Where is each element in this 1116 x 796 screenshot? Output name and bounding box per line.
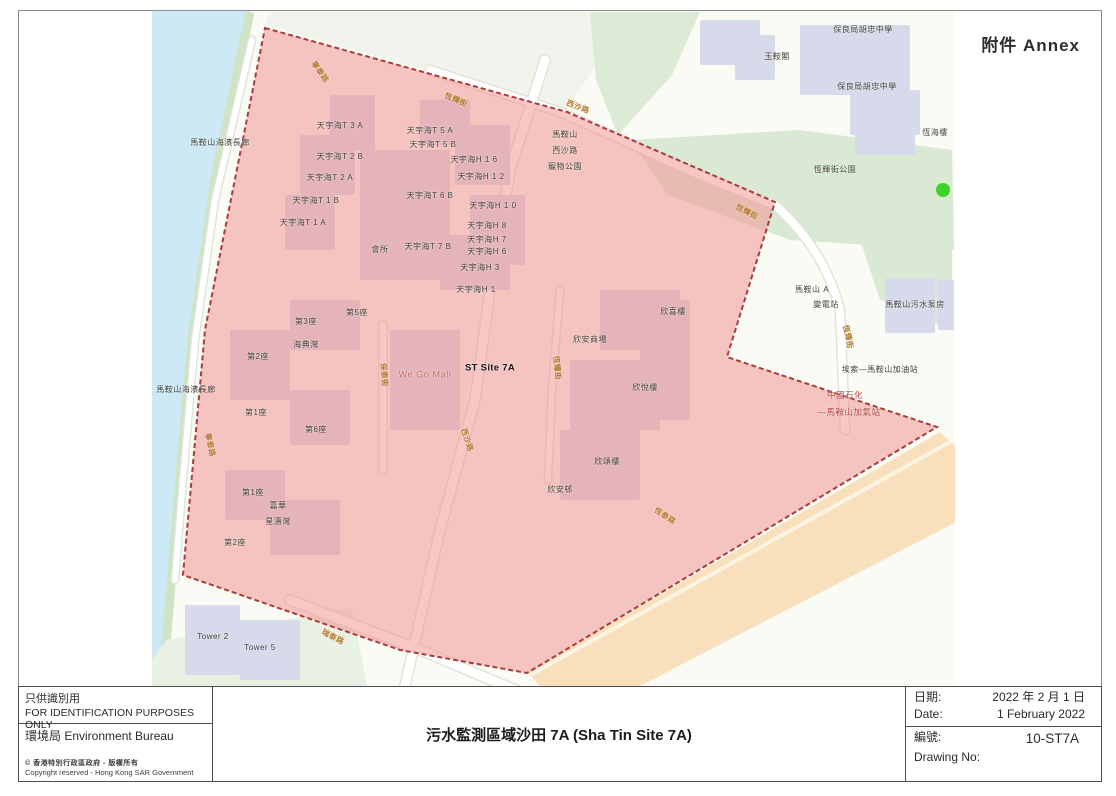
title-cell: 污水監測區域沙田 7A (Sha Tin Site 7A): [213, 687, 905, 781]
title-block-right: 日期: 2022 年 2 月 1 日 Date: 1 February 2022…: [905, 687, 1101, 781]
date-label-zh: 日期:: [914, 689, 958, 706]
bureau-name: 環境局 Environment Bureau: [25, 727, 206, 744]
map-svg: [152, 10, 955, 686]
copyright-zh: © 香港特別行政區政府 - 版權所有: [25, 758, 138, 768]
copyright-en: Copyright reserved - Hong Kong SAR Gover…: [25, 768, 193, 777]
title-block: 只供識別用 FOR IDENTIFICATION PURPOSES ONLY 環…: [18, 686, 1102, 782]
drawing-no-value: 10-ST7A: [958, 729, 1093, 749]
bureau-cell: 環境局 Environment Bureau © 香港特別行政區政府 - 版權所…: [19, 724, 212, 781]
date-value-en: 1 February 2022: [958, 706, 1093, 723]
purpose-zh: 只供識別用: [25, 690, 206, 706]
green-dot: [936, 183, 950, 197]
date-cell: 日期: 2022 年 2 月 1 日 Date: 1 February 2022: [906, 687, 1101, 727]
drawing-title: 污水監測區域沙田 7A (Sha Tin Site 7A): [426, 724, 692, 745]
date-label-en: Date:: [914, 706, 958, 723]
drawing-no-label-en: Drawing No:: [914, 749, 980, 766]
title-block-left: 只供識別用 FOR IDENTIFICATION PURPOSES ONLY 環…: [19, 687, 213, 781]
drawing-no-label-zh: 編號:: [914, 729, 958, 749]
annex-heading: 附件 Annex: [981, 31, 1080, 56]
annex-sheet: { "annex_label": "附件 Annex", "map": { "g…: [0, 0, 1116, 796]
map-canvas[interactable]: [152, 10, 955, 686]
drawing-no-cell: 編號: 10-ST7A Drawing No:: [906, 727, 1101, 781]
identification-cell: 只供識別用 FOR IDENTIFICATION PURPOSES ONLY: [19, 687, 212, 724]
date-value-zh: 2022 年 2 月 1 日: [958, 689, 1093, 706]
